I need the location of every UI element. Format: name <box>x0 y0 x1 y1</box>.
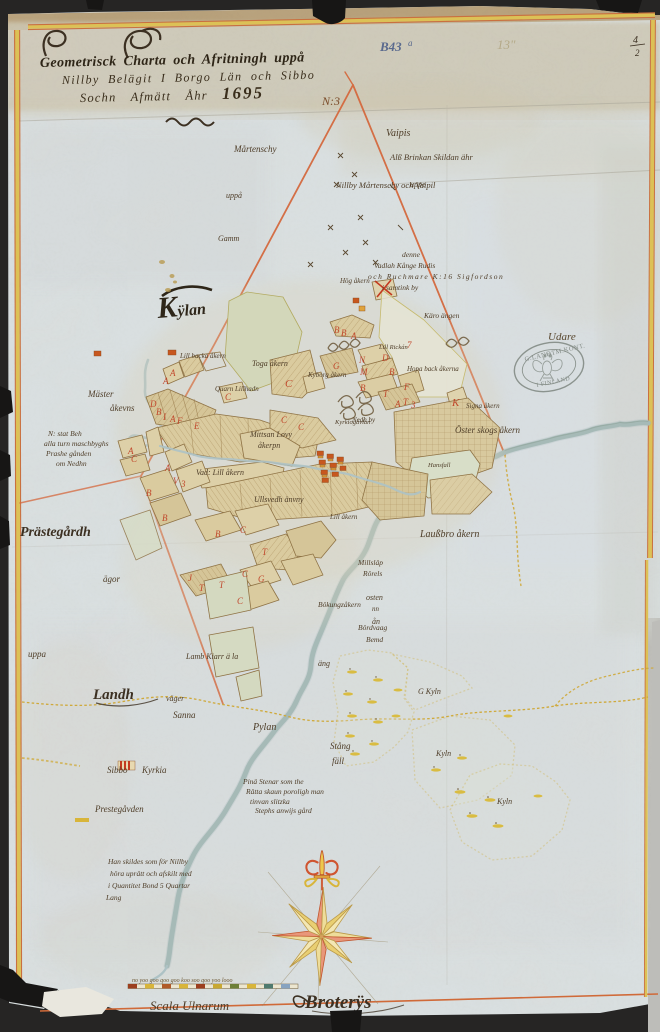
svg-text:Bemd: Bemd <box>366 635 383 644</box>
svg-text:Hansfall: Hansfall <box>427 462 451 469</box>
svg-text:fäll: fäll <box>332 756 345 766</box>
svg-text:Stephs anwijs gård: Stephs anwijs gård <box>255 806 312 815</box>
svg-text:Lamb Kiarr ä la: Lamb Kiarr ä la <box>185 652 238 661</box>
svg-text:Signa åkern: Signa åkern <box>466 402 500 410</box>
svg-text:Lill Rickán: Lill Rickán <box>378 344 408 351</box>
svg-text:C: C <box>237 596 244 606</box>
svg-text:Ullsvedh änvny: Ullsvedh änvny <box>254 495 304 504</box>
svg-text:äng: äng <box>318 659 330 668</box>
svg-text:Öster skogs åkern: Öster skogs åkern <box>455 425 520 435</box>
svg-text:ån: ån <box>372 617 380 626</box>
svg-text:Rörels: Rörels <box>362 569 382 578</box>
svg-text:N: N <box>358 355 366 365</box>
svg-text:K: K <box>451 397 460 409</box>
svg-text:Prashe gånden: Prashe gånden <box>45 449 91 458</box>
svg-text:tinvan slitzka: tinvan slitzka <box>250 797 290 806</box>
svg-text:Kyrkia: Kyrkia <box>141 765 167 775</box>
svg-text:Lill backa åkern: Lill backa åkern <box>179 352 226 360</box>
svg-text:Prestegåvden: Prestegåvden <box>94 804 144 814</box>
svg-text:Vad: Lill åkern: Vad: Lill åkern <box>196 468 244 477</box>
svg-text:N:3: N:3 <box>321 94 340 108</box>
svg-text:i samtink by: i samtink by <box>382 283 419 292</box>
svg-text:Kyln: Kyln <box>496 797 512 806</box>
svg-text:uppa: uppa <box>28 649 47 659</box>
svg-text:åkerpn: åkerpn <box>258 441 280 450</box>
svg-text:C: C <box>298 422 305 432</box>
svg-text:A: A <box>394 399 401 409</box>
svg-text:åkevns: åkevns <box>110 403 135 413</box>
svg-text:om Nedhn: om Nedhn <box>56 459 87 468</box>
svg-text:denne: denne <box>402 250 421 259</box>
svg-text:höra uprätt och afskilt med: höra uprätt och afskilt med <box>110 869 192 878</box>
svg-text:Hög åkern: Hög åkern <box>339 277 370 285</box>
svg-text:uppå: uppå <box>226 191 242 200</box>
svg-text:Kyln: Kyln <box>435 749 451 758</box>
svg-text:A: A <box>162 376 169 386</box>
svg-text:väger: väger <box>166 694 185 703</box>
svg-text:D: D <box>381 353 389 363</box>
svg-text:Stång: Stång <box>330 741 351 751</box>
svg-text:B: B <box>146 488 152 498</box>
svg-text:G: G <box>258 574 265 584</box>
svg-text:uppe: uppe <box>410 180 426 189</box>
svg-text:och Ruchmare K:16 Sigfordson: och Ruchmare K:16 Sigfordson <box>368 272 504 281</box>
svg-text:Pinä Stenar som the: Pinä Stenar som the <box>242 777 304 786</box>
svg-text:M: M <box>359 367 368 377</box>
svg-text:3: 3 <box>180 479 186 489</box>
svg-text:C: C <box>242 569 249 579</box>
svg-text:Quarn Lillhadn: Quarn Lillhadn <box>215 385 259 393</box>
svg-text:Käro ängen: Käro ängen <box>423 311 460 320</box>
svg-text:B: B <box>334 325 340 335</box>
svg-text:B: B <box>389 367 395 377</box>
svg-text:2: 2 <box>635 48 640 58</box>
svg-text:Rätta skaun poroligh man: Rätta skaun poroligh man <box>245 787 324 796</box>
svg-text:Millsläp: Millsläp <box>357 558 383 567</box>
svg-text:Kyrkiogåvlan: Kyrkiogåvlan <box>334 419 370 426</box>
svg-text:Prästegårdh: Prästegårdh <box>20 525 91 540</box>
svg-text:Vadlah Kånge Rudis: Vadlah Kånge Rudis <box>374 261 435 270</box>
svg-text:Gamm: Gamm <box>218 234 240 243</box>
svg-text:ägor: ägor <box>103 574 121 584</box>
svg-text:Landh: Landh <box>92 687 134 703</box>
svg-text:B: B <box>162 513 168 523</box>
svg-text:E: E <box>193 421 200 431</box>
svg-text:Han skildes som för Nillby: Han skildes som för Nillby <box>107 857 189 866</box>
svg-text:alla turn maschbyghs: alla turn maschbyghs <box>44 439 109 448</box>
svg-text:Pylan: Pylan <box>252 722 276 733</box>
svg-text:Mittsan Lovy: Mittsan Lovy <box>249 430 292 439</box>
svg-text:C: C <box>225 392 232 402</box>
svg-text:Alß Brinkan Skildan ähr: Alß Brinkan Skildan ähr <box>389 152 474 162</box>
svg-text:B: B <box>156 407 162 417</box>
svg-text:C: C <box>281 415 288 425</box>
svg-text:C: C <box>131 454 138 464</box>
svg-text:a: a <box>408 38 413 48</box>
svg-text:Mårtenschy: Mårtenschy <box>233 144 277 154</box>
svg-text:Kyborg åkern: Kyborg åkern <box>307 371 347 379</box>
svg-text:nn: nn <box>372 605 380 613</box>
svg-text:Vaipis: Vaipis <box>386 128 411 139</box>
svg-text:13": 13" <box>497 37 516 52</box>
svg-text:A: A <box>169 414 176 424</box>
svg-text:F: F <box>176 416 183 426</box>
svg-text:no yoo goo qoo goo koo soo qoo: no yoo goo qoo goo koo soo qoo yoo looo <box>132 978 233 984</box>
svg-text:Sibbo: Sibbo <box>107 765 128 775</box>
svg-text:F: F <box>403 382 410 392</box>
svg-text:3: 3 <box>410 400 416 410</box>
svg-text:Broterÿs: Broterÿs <box>304 992 372 1013</box>
svg-text:G: G <box>333 361 340 371</box>
svg-text:G Kyln: G Kyln <box>418 687 441 696</box>
svg-text:i Quantitet Bond 5 Quartar: i Quantitet Bond 5 Quartar <box>108 881 190 890</box>
svg-text:C: C <box>240 525 247 535</box>
svg-text:Mäster: Mäster <box>87 389 114 399</box>
svg-text:Lang: Lang <box>105 893 122 902</box>
svg-text:Udare: Udare <box>548 331 576 343</box>
svg-text:Toga åkern: Toga åkern <box>252 359 288 368</box>
svg-text:A: A <box>169 368 176 378</box>
svg-text:osten: osten <box>366 593 383 602</box>
svg-text:C: C <box>285 378 293 390</box>
svg-text:B43: B43 <box>379 39 402 54</box>
svg-text:A: A <box>164 463 171 473</box>
svg-text:B: B <box>341 328 347 338</box>
svg-text:Laußbro åkern: Laußbro åkern <box>419 529 479 540</box>
svg-text:B: B <box>215 529 221 539</box>
svg-text:N: stat Beh: N: stat Beh <box>47 429 82 438</box>
svg-text:4: 4 <box>633 35 638 46</box>
svg-text:7: 7 <box>407 340 412 350</box>
svg-text:Lill åkern: Lill åkern <box>329 513 358 521</box>
svg-text:Bökungzåkern: Bökungzåkern <box>318 600 361 609</box>
svg-text:Sanna: Sanna <box>173 710 196 720</box>
svg-text:Hopa back åkerna: Hopa back åkerna <box>406 365 459 373</box>
svg-text:Scala Ulnarum: Scala Ulnarum <box>150 998 229 1013</box>
